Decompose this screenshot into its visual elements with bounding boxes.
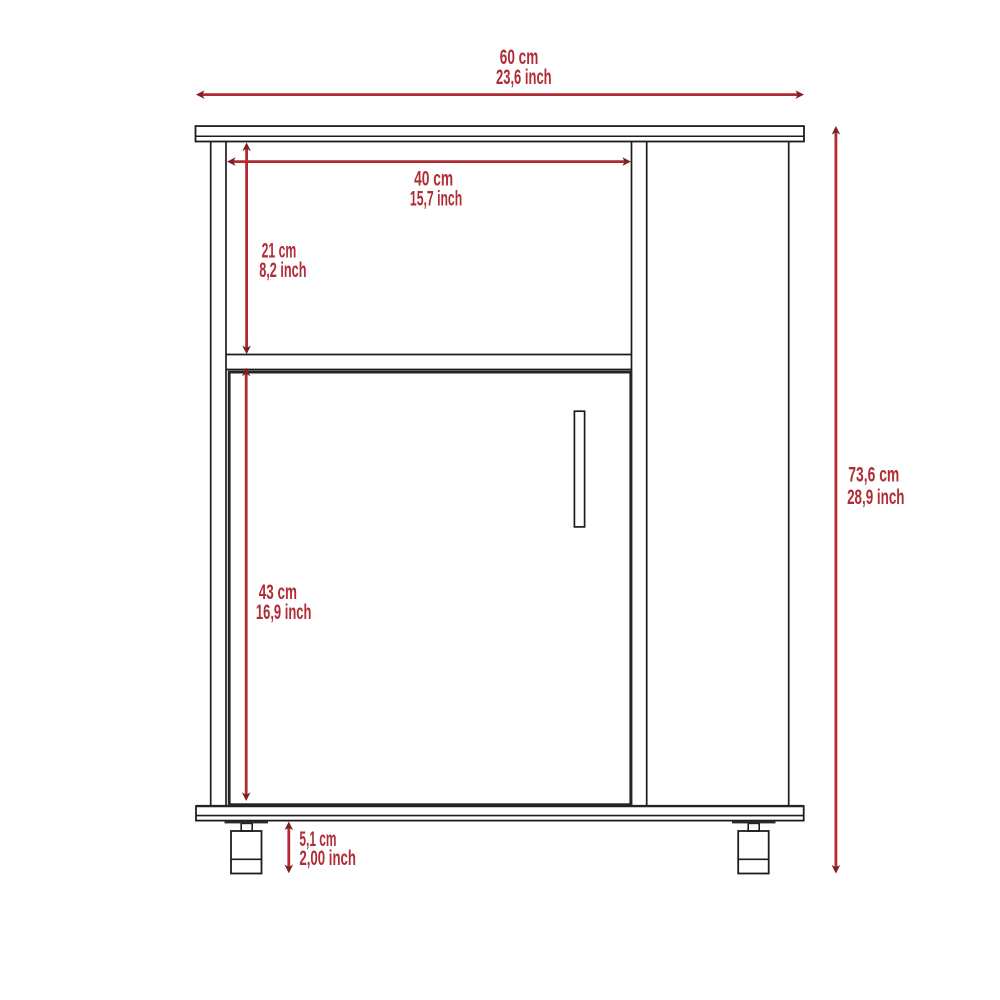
svg-text:15,7 inch: 15,7 inch xyxy=(410,187,462,211)
svg-text:28,9 inch: 28,9 inch xyxy=(847,485,904,509)
svg-text:73,6 cm: 73,6 cm xyxy=(848,463,899,487)
svg-text:2,00 inch: 2,00 inch xyxy=(299,846,356,870)
svg-text:23,6 inch: 23,6 inch xyxy=(496,65,552,89)
svg-text:8,2 inch: 8,2 inch xyxy=(259,258,306,282)
svg-text:16,9 inch: 16,9 inch xyxy=(256,600,312,624)
